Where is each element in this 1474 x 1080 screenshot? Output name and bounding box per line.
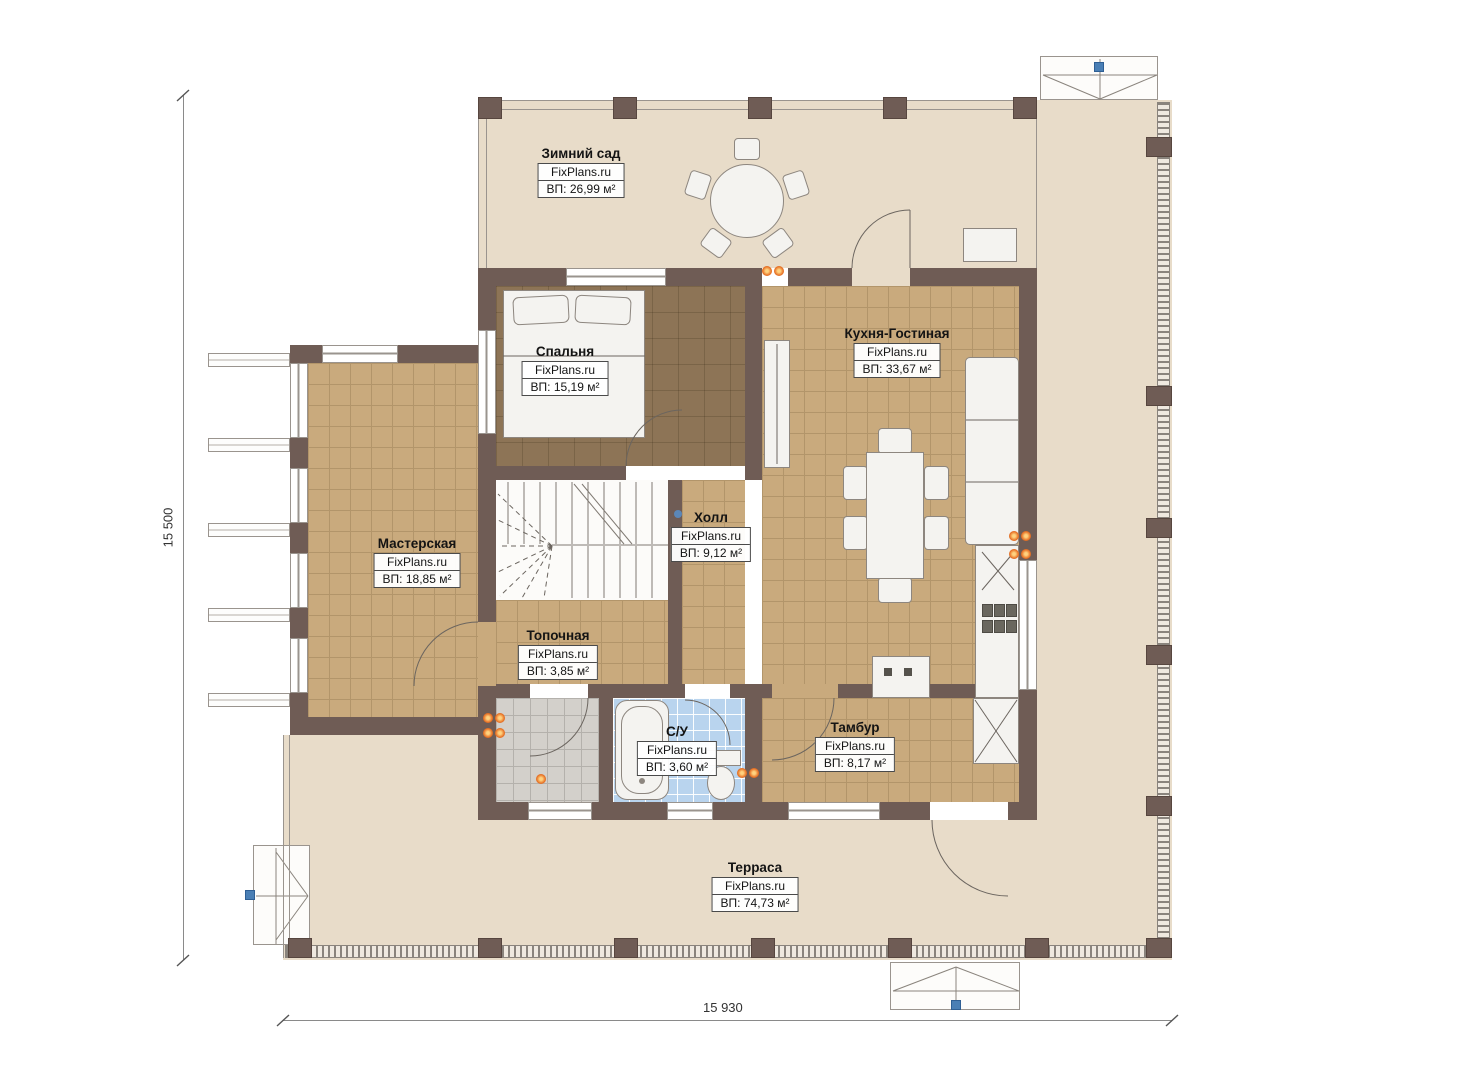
- room-name: Кухня-Гостиная: [845, 326, 950, 341]
- door-opening-bathroom: [685, 684, 730, 698]
- room-name: С/У: [637, 724, 717, 739]
- stove-burner: [1006, 620, 1017, 633]
- railing-post: [478, 938, 502, 958]
- kitchen-appliance: [872, 656, 930, 698]
- stove-burner: [982, 604, 993, 617]
- door-opening-winter-garden: [852, 268, 910, 286]
- room-brand: FixPlans.ru: [375, 554, 460, 571]
- dining-chair: [924, 516, 949, 550]
- label-terrace: Терраса FixPlans.ruВП: 74,73 м²: [712, 860, 799, 912]
- glazing-post: [1013, 97, 1037, 119]
- pillow: [574, 295, 631, 326]
- railing-post: [888, 938, 912, 958]
- room-brand: FixPlans.ru: [519, 646, 597, 663]
- room-brand: FixPlans.ru: [855, 344, 940, 361]
- railing-post: [1146, 796, 1172, 816]
- room-brand: FixPlans.ru: [816, 738, 894, 755]
- label-vestibule: Тамбур FixPlans.ruВП: 8,17 м²: [815, 720, 895, 772]
- glazing-post: [478, 97, 502, 119]
- window-entry-bottom: [528, 802, 592, 820]
- railing-post: [1146, 518, 1172, 538]
- railing-post: [288, 938, 312, 958]
- wall-wing-bottom: [290, 717, 478, 735]
- stove-burner: [1006, 604, 1017, 617]
- window-bathroom-bottom: [667, 802, 713, 820]
- window-vestibule-bottom: [788, 802, 880, 820]
- glazing-post: [883, 97, 907, 119]
- window-sill: [208, 608, 290, 622]
- room-name: Терраса: [712, 860, 799, 875]
- room-name: Мастерская: [374, 536, 461, 551]
- window-sill: [208, 353, 290, 367]
- wall-entry-bathroom: [599, 698, 613, 802]
- railing-post: [1146, 137, 1172, 157]
- sconce-light: [1021, 549, 1031, 559]
- dimension-line-bottom: [283, 1020, 1172, 1021]
- sconce-light: [495, 728, 505, 738]
- label-winter-garden: Зимний сад FixPlans.ruВП: 26,99 м²: [538, 146, 625, 198]
- window-kitchen-right: [1019, 560, 1037, 690]
- dining-chair: [924, 466, 949, 500]
- vestibule-closet: [973, 698, 1019, 764]
- wall-bedroom-kitchen: [745, 268, 762, 480]
- railing-post: [1146, 645, 1172, 665]
- garden-chair: [734, 138, 760, 160]
- room-name: Тамбур: [815, 720, 895, 735]
- window-sill: [208, 438, 290, 452]
- sconce-light: [1009, 549, 1019, 559]
- garden-bench: [963, 228, 1017, 262]
- room-brand: FixPlans.ru: [638, 742, 716, 759]
- sconce-light: [1009, 531, 1019, 541]
- window-workshop-top: [322, 345, 398, 363]
- dining-chair: [878, 577, 912, 603]
- stove-burner: [994, 620, 1005, 633]
- label-bedroom: Спальня FixPlans.ruВП: 15,19 м²: [522, 344, 609, 396]
- bathtub-drain: [639, 778, 645, 784]
- entrance-steps-left: [253, 845, 310, 945]
- room-brand: FixPlans.ru: [672, 528, 750, 545]
- glazing-post: [613, 97, 637, 119]
- stove-burner: [982, 620, 993, 633]
- sconce-light: [536, 774, 546, 784]
- sofa: [965, 357, 1019, 545]
- entry-marker: [1094, 62, 1104, 72]
- winter-garden-glazing-left: [486, 102, 487, 268]
- label-boiler-room: Топочная FixPlans.ruВП: 3,85 м²: [518, 628, 598, 680]
- entry-marker: [951, 1000, 961, 1010]
- window-workshop-left: [290, 363, 308, 438]
- sconce-light: [762, 266, 772, 276]
- room-area: ВП: 15,19 м²: [523, 379, 608, 395]
- room-area: ВП: 18,85 м²: [375, 571, 460, 587]
- sconce-light: [483, 713, 493, 723]
- dimension-value-height: 15 500: [160, 508, 175, 548]
- window-bedroom-left: [478, 330, 496, 434]
- dining-chair: [843, 466, 868, 500]
- room-area: ВП: 9,12 м²: [672, 545, 750, 561]
- room-area: ВП: 33,67 м²: [855, 361, 940, 377]
- glazing-post: [748, 97, 772, 119]
- room-name: Топочная: [518, 628, 598, 643]
- appliance-knob: [884, 668, 892, 676]
- room-area: ВП: 74,73 м²: [713, 895, 798, 911]
- sconce-light: [749, 768, 759, 778]
- appliance-knob: [904, 668, 912, 676]
- wall-house-right: [1019, 268, 1037, 820]
- window-sill: [208, 693, 290, 707]
- railing-post: [1146, 938, 1172, 958]
- room-brand: FixPlans.ru: [523, 362, 608, 379]
- dimension-line-left: [183, 95, 184, 960]
- sconce-light: [737, 768, 747, 778]
- room-area: ВП: 3,85 м²: [519, 663, 597, 679]
- label-bathroom: С/У FixPlans.ruВП: 3,60 м²: [637, 724, 717, 776]
- room-name: Спальня: [522, 344, 609, 359]
- window-workshop-left: [290, 468, 308, 523]
- label-workshop: Мастерская FixPlans.ruВП: 18,85 м²: [374, 536, 461, 588]
- dining-chair: [878, 428, 912, 454]
- label-hall: Холл FixPlans.ruВП: 9,12 м²: [671, 510, 751, 562]
- label-kitchen-living: Кухня-Гостиная FixPlans.ruВП: 33,67 м²: [845, 326, 950, 378]
- terrace-edge-left: [283, 735, 290, 958]
- railing-post: [1146, 386, 1172, 406]
- window-sill: [208, 523, 290, 537]
- railing-post: [1025, 938, 1049, 958]
- room-area: ВП: 8,17 м²: [816, 755, 894, 771]
- room-name: Зимний сад: [538, 146, 625, 161]
- garden-round-table: [710, 164, 784, 238]
- sconce-light: [774, 266, 784, 276]
- dimension-value-width: 15 930: [703, 1000, 743, 1015]
- stairwell: [496, 480, 668, 600]
- tv-unit: [764, 340, 790, 468]
- dining-table: [866, 452, 924, 579]
- door-opening-workshop: [478, 622, 496, 686]
- winter-garden-glazing-right: [1036, 100, 1037, 268]
- room-area: ВП: 26,99 м²: [539, 181, 624, 197]
- railing-post: [751, 938, 775, 958]
- room-area: ВП: 3,60 м²: [638, 759, 716, 775]
- pillow: [512, 295, 569, 326]
- sconce-light: [483, 728, 493, 738]
- wall-bathroom-vestibule: [745, 698, 762, 802]
- stove-burner: [994, 604, 1005, 617]
- door-opening-bedroom: [626, 466, 682, 480]
- window-workshop-left: [290, 638, 308, 693]
- door-opening-vestibule: [772, 684, 838, 698]
- room-brand: FixPlans.ru: [713, 878, 798, 895]
- room-name: Холл: [671, 510, 751, 525]
- room-brand: FixPlans.ru: [539, 164, 624, 181]
- door-opening-exit: [930, 802, 1008, 820]
- window-bedroom-top: [566, 268, 666, 286]
- entry-marker: [245, 890, 255, 900]
- door-opening-boiler: [530, 684, 588, 698]
- floor-plan-canvas: 15 500 15 930 Зимний сад FixPlans.ruВП: …: [0, 0, 1474, 1080]
- dining-chair: [843, 516, 868, 550]
- room-entry: [496, 698, 599, 802]
- terrace-floor-bottom-left: [283, 735, 478, 960]
- railing-post: [614, 938, 638, 958]
- window-workshop-left: [290, 553, 308, 608]
- sconce-light: [1021, 531, 1031, 541]
- sconce-light: [495, 713, 505, 723]
